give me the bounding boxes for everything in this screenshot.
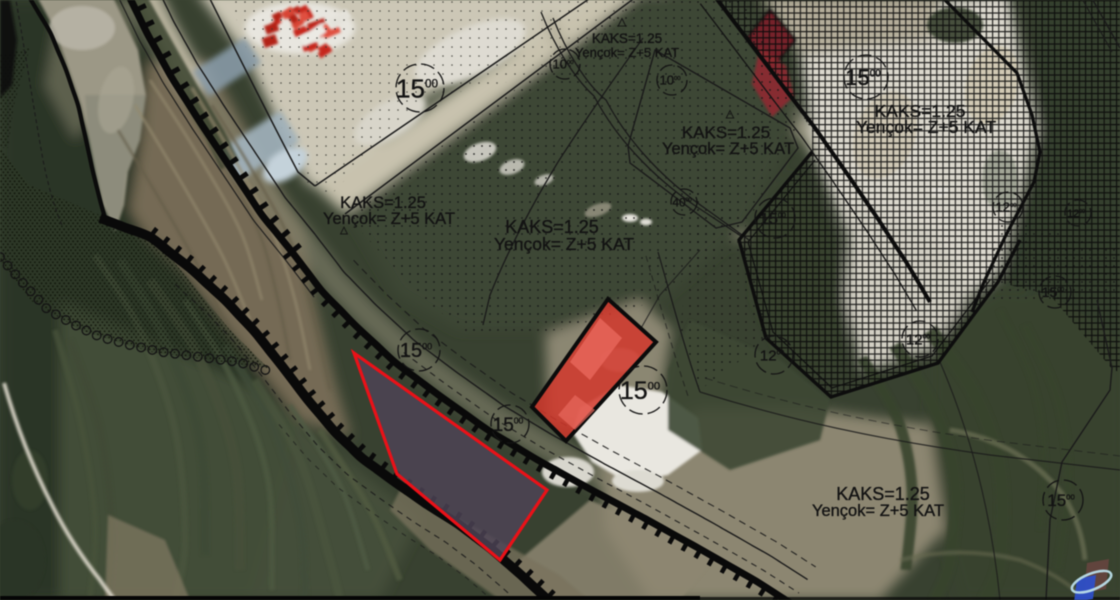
svg-text:Yençok= Z+5 KAT: Yençok= Z+5 KAT	[662, 140, 794, 158]
svg-text:KAKS=1.25: KAKS=1.25	[836, 484, 930, 504]
svg-text:△: △	[618, 16, 627, 28]
svg-text:Yençok= Z+5 KAT: Yençok= Z+5 KAT	[575, 45, 679, 60]
svg-text:Yençok= Z+5 KAT: Yençok= Z+5 KAT	[856, 117, 996, 137]
svg-text:△: △	[726, 108, 735, 120]
svg-text:KAKS=1.25: KAKS=1.25	[592, 31, 662, 46]
svg-text:Yençok= Z+5 KAT: Yençok= Z+5 KAT	[812, 502, 944, 520]
svg-text:Yençok= Z+5 KAT: Yençok= Z+5 KAT	[494, 234, 634, 254]
svg-text:△: △	[340, 225, 348, 236]
